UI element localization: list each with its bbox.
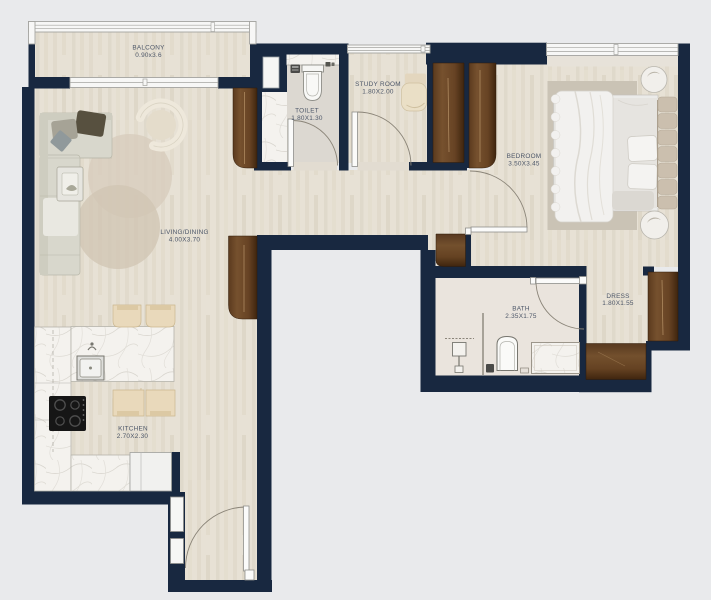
svg-text:STUDY ROOM: STUDY ROOM (355, 81, 401, 88)
svg-text:0.90x3.6: 0.90x3.6 (135, 52, 162, 59)
svg-text:2.70X2.30: 2.70X2.30 (117, 433, 149, 440)
svg-text:BATH: BATH (512, 306, 530, 313)
svg-text:LIVING/DINING: LIVING/DINING (160, 229, 208, 236)
svg-text:2.35X1.75: 2.35X1.75 (505, 313, 537, 320)
svg-text:3.50X3.45: 3.50X3.45 (508, 161, 540, 168)
svg-text:4.00X3.70: 4.00X3.70 (169, 237, 201, 244)
svg-text:KITCHEN: KITCHEN (118, 426, 148, 433)
svg-text:DRESS: DRESS (606, 293, 629, 300)
svg-text:BALCONY: BALCONY (132, 45, 165, 52)
svg-text:1.80X1.30: 1.80X1.30 (291, 115, 323, 122)
svg-text:BEDROOM: BEDROOM (507, 153, 542, 160)
svg-text:1.80X1.55: 1.80X1.55 (602, 300, 634, 307)
svg-text:TOILET: TOILET (295, 108, 319, 115)
svg-text:1.80X2.00: 1.80X2.00 (362, 89, 394, 96)
